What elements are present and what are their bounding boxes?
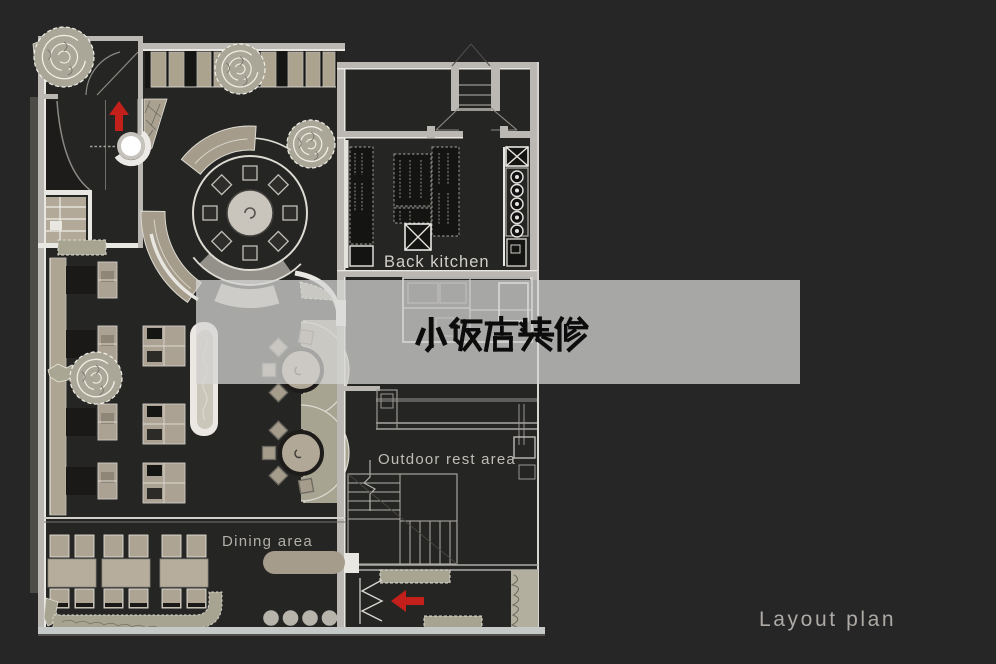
svg-text:Outdoor rest area: Outdoor rest area <box>378 451 516 468</box>
svg-text:Back kitchen: Back kitchen <box>384 253 490 271</box>
svg-text:Dining area: Dining area <box>222 533 313 550</box>
svg-text:Layout plan: Layout plan <box>759 608 896 631</box>
